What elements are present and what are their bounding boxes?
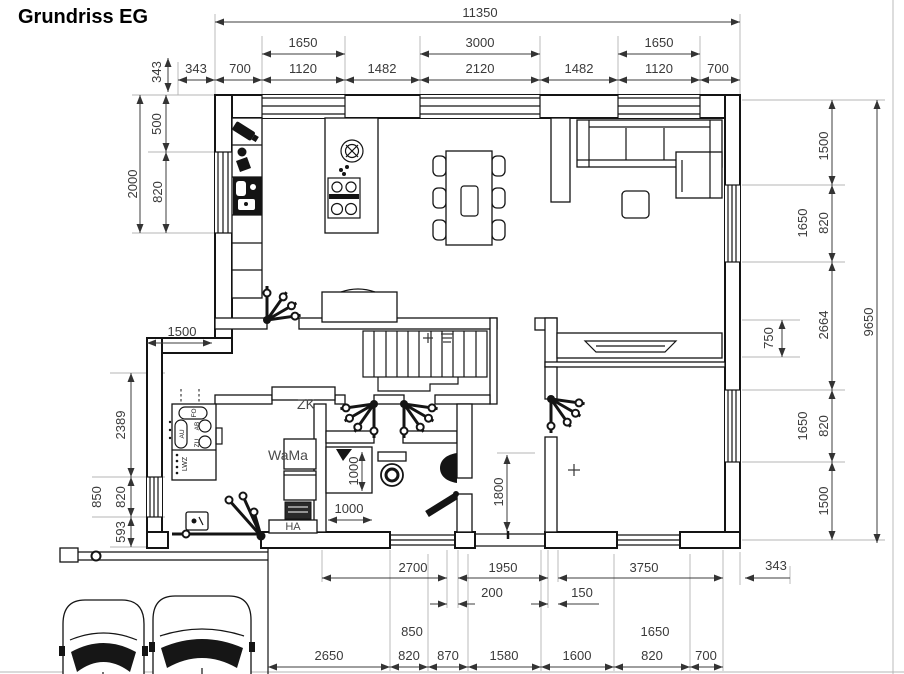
- dim-label: 1800: [491, 478, 506, 507]
- dim-label: 2700: [399, 560, 428, 575]
- dim-label: 1482: [368, 61, 397, 76]
- dim-label: 11350: [462, 5, 497, 20]
- dim-label: 1482: [565, 61, 594, 76]
- dim-label: 1650: [795, 412, 810, 441]
- dim-label: 750: [761, 327, 776, 349]
- vent-label-lwz: LWZ: [182, 456, 189, 471]
- dining-table: [446, 151, 492, 245]
- door-fan-kitchen: [263, 286, 301, 324]
- dim-label: 820: [398, 648, 420, 663]
- dim-label: 2389: [113, 411, 128, 440]
- washbasin-icon: [440, 453, 457, 483]
- dim-label: 700: [229, 61, 251, 76]
- kitchen: [232, 118, 378, 298]
- dim-label: 1120: [645, 61, 673, 76]
- window-left-wing: [147, 477, 162, 517]
- window-bottom-1: [390, 535, 455, 545]
- wc-door: [427, 491, 459, 514]
- floor-drain: [186, 512, 208, 530]
- dim-label: 1580: [490, 648, 519, 663]
- room-center-mark: [568, 464, 580, 476]
- chair: [433, 156, 446, 176]
- floor-plan-page: Grundriss EG: [0, 0, 904, 674]
- tv-sideboard: [557, 333, 722, 358]
- chair: [492, 188, 505, 208]
- vent-label-zu: ZU: [194, 438, 201, 447]
- ventilation-unit: FO AU AB ZU LWZ: [169, 389, 222, 480]
- car-2: [149, 596, 255, 674]
- dim-label: 2000: [125, 170, 140, 199]
- window-right-room: [725, 390, 740, 462]
- dim-label: 2120: [466, 61, 495, 76]
- kitchen-sink-icon: [233, 177, 262, 215]
- dim-label: 850: [89, 486, 104, 508]
- label-zk: ZK: [297, 396, 316, 412]
- dim-label: 820: [816, 212, 831, 234]
- dim-label: 700: [695, 648, 717, 663]
- dim-label: 1650: [641, 624, 670, 639]
- dim-label: 1500: [168, 324, 197, 339]
- vent-label-au: AU: [179, 429, 186, 438]
- dimensions-bottom: 2700 1950 3750 200 150 850 1650 2650 820…: [268, 560, 723, 667]
- door-fan-right-room: [547, 395, 585, 433]
- car-1: [59, 600, 148, 674]
- window-top-3: [618, 95, 700, 118]
- dim-label: 820: [113, 486, 128, 508]
- chair: [433, 188, 446, 208]
- carport: [59, 548, 268, 674]
- dim-label: 2664: [816, 311, 831, 340]
- window-top-2: [420, 95, 540, 118]
- label-ha: HA: [285, 521, 301, 533]
- dim-label: 1120: [289, 61, 317, 76]
- dim-label: 343: [185, 61, 207, 76]
- dim-label: 820: [816, 415, 831, 437]
- dim-label: 850: [401, 624, 423, 639]
- stairs: [363, 331, 487, 391]
- dim-label: 820: [150, 181, 165, 203]
- coffee-table: [622, 191, 649, 218]
- dim-label: 1650: [289, 35, 318, 50]
- dim-label: 870: [437, 648, 459, 663]
- label-wama: WaMa: [268, 447, 308, 463]
- dim-label: 1000: [346, 457, 361, 486]
- dim-label: 1000: [335, 501, 364, 516]
- dim-label: 9650: [861, 308, 876, 337]
- window-bottom-2: [617, 535, 680, 545]
- dim-label: 500: [149, 113, 164, 135]
- chair: [492, 156, 505, 176]
- dim-label: 820: [641, 648, 663, 663]
- dim-label: 3000: [466, 35, 495, 50]
- kitchen-island: [325, 118, 378, 233]
- chair: [492, 220, 505, 240]
- dim-label: 593: [113, 521, 128, 543]
- dim-label: 1950: [489, 560, 518, 575]
- dim-label: 1500: [816, 132, 831, 161]
- vent-label-ab: AB: [194, 422, 201, 431]
- dim-label: 3750: [630, 560, 659, 575]
- toilet-icon: [378, 452, 406, 486]
- dim-label: 150: [571, 585, 593, 600]
- dim-label: 2650: [315, 648, 344, 663]
- dim-label: 700: [707, 61, 729, 76]
- dim-label: 1650: [795, 209, 810, 238]
- kitchen-fixture-icon: [238, 148, 247, 157]
- dimensions-right: 1500 1650 820 2664 750 9650 1650 820 150…: [745, 100, 877, 578]
- sofa-chaise: [676, 152, 722, 198]
- sofa-set: [568, 120, 722, 476]
- entrance-door: [475, 531, 545, 546]
- window-top-1: [262, 95, 345, 118]
- dim-label: 1500: [816, 487, 831, 516]
- dim-label: 343: [149, 61, 164, 83]
- window-right-living: [725, 185, 740, 262]
- vent-label-fo: FO: [191, 408, 198, 417]
- post-connector: [92, 552, 101, 561]
- window-left-kitchen: [215, 152, 232, 233]
- hall-sideboard: [322, 289, 397, 322]
- floor-plan-svg: FO AU AB ZU LWZ: [0, 0, 904, 674]
- dim-label: 1650: [645, 35, 674, 50]
- dim-label: 200: [481, 585, 503, 600]
- stair-direction-mark: [423, 333, 453, 343]
- chair: [433, 220, 446, 240]
- dim-label: 343: [765, 558, 787, 573]
- dim-label: 1600: [563, 648, 592, 663]
- dining-set: [433, 151, 505, 245]
